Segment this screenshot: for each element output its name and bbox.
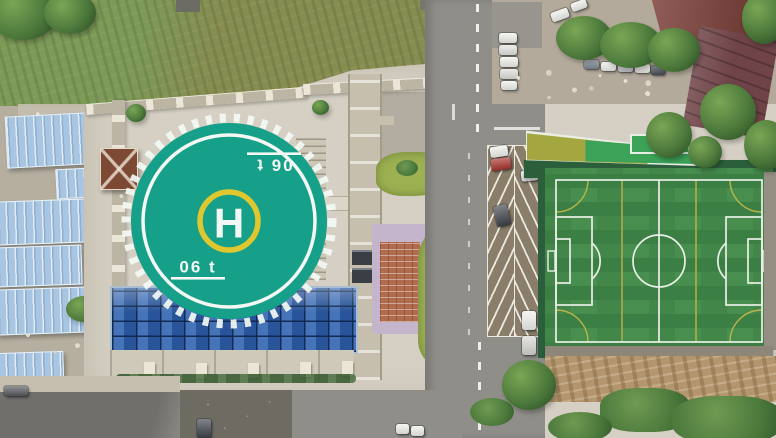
pitch-white-lines (556, 180, 762, 342)
car-lot-col-2 (499, 45, 517, 55)
goal-left (548, 251, 555, 271)
car-bottom-white-2 (411, 426, 424, 436)
car-bottom-dark (197, 419, 211, 438)
road-lane-dash-top (476, 4, 479, 132)
car-lot-col-3 (500, 57, 518, 67)
car-bottom-white-1 (396, 424, 409, 434)
parking-island-left (487, 145, 515, 337)
svg-text:06 t: 06 t (179, 258, 216, 277)
bush-lawn-upper (396, 160, 418, 176)
road-lane-dash-left (468, 150, 470, 335)
veg-bottom-3 (548, 412, 612, 438)
svg-text:06 t: 06 t (255, 156, 292, 175)
road-arrow-mark (452, 104, 455, 120)
blue-roof-shed-3 (0, 198, 89, 245)
car-lot-row-1 (584, 60, 599, 69)
tree-by-canopy-1 (646, 112, 692, 158)
rooftop-ac-unit-1 (352, 250, 372, 265)
helipad-letter: H (214, 200, 244, 247)
rooftop-ac-unit-2 (352, 268, 372, 283)
tree-by-canopy-2 (688, 136, 722, 168)
veg-bottom-2 (672, 396, 776, 438)
car-lot-col-1 (499, 33, 517, 43)
shed-top-1 (176, 0, 200, 12)
car-bottom-left-dark (4, 386, 28, 396)
blue-roof-shed-4 (0, 245, 83, 288)
field-wall-right (764, 172, 776, 350)
brick-material-stack (380, 242, 420, 322)
helipad: H 06 t 06 t (118, 110, 340, 332)
car-white-road-3 (522, 311, 536, 330)
spine-arm-1 (378, 116, 394, 125)
car-silver-road-4 (522, 336, 536, 355)
tree-round-road (502, 360, 556, 410)
veg-bottom-4 (470, 398, 514, 426)
aerial-photo: H 06 t 06 t (0, 0, 776, 438)
soccer-field-markings (545, 168, 773, 356)
lot-rubble (498, 72, 668, 102)
tree-lot-3 (648, 28, 700, 72)
